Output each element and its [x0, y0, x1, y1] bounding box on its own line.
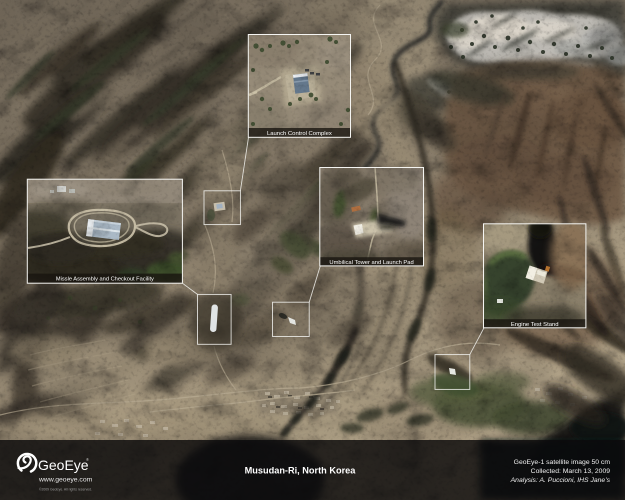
svg-text:Umbilical Tower and Launch Pad: Umbilical Tower and Launch Pad — [329, 260, 413, 266]
svg-text:GeoEye: GeoEye — [38, 457, 89, 473]
svg-text:Musudan-Ri, North Korea: Musudan-Ri, North Korea — [245, 466, 357, 476]
svg-text:Analysis: A. Puccioni, IHS Jan: Analysis: A. Puccioni, IHS Jane’s — [510, 477, 611, 484]
svg-text:Engine Test Stand: Engine Test Stand — [511, 322, 559, 328]
svg-text:GeoEye-1 satellite image 50 cm: GeoEye-1 satellite image 50 cm — [514, 459, 611, 466]
svg-text:Missle Assembly and Checkout F: Missle Assembly and Checkout Facility — [56, 277, 154, 283]
svg-text:Collected: March 13, 2009: Collected: March 13, 2009 — [531, 468, 611, 475]
svg-text:www.geoeye.com: www.geoeye.com — [38, 477, 93, 484]
svg-text:®: ® — [86, 457, 89, 462]
svg-text:Launch Control Complex: Launch Control Complex — [267, 131, 332, 137]
svg-text:©2009 GeoEye. All rights reser: ©2009 GeoEye. All rights reserved. — [39, 488, 92, 492]
